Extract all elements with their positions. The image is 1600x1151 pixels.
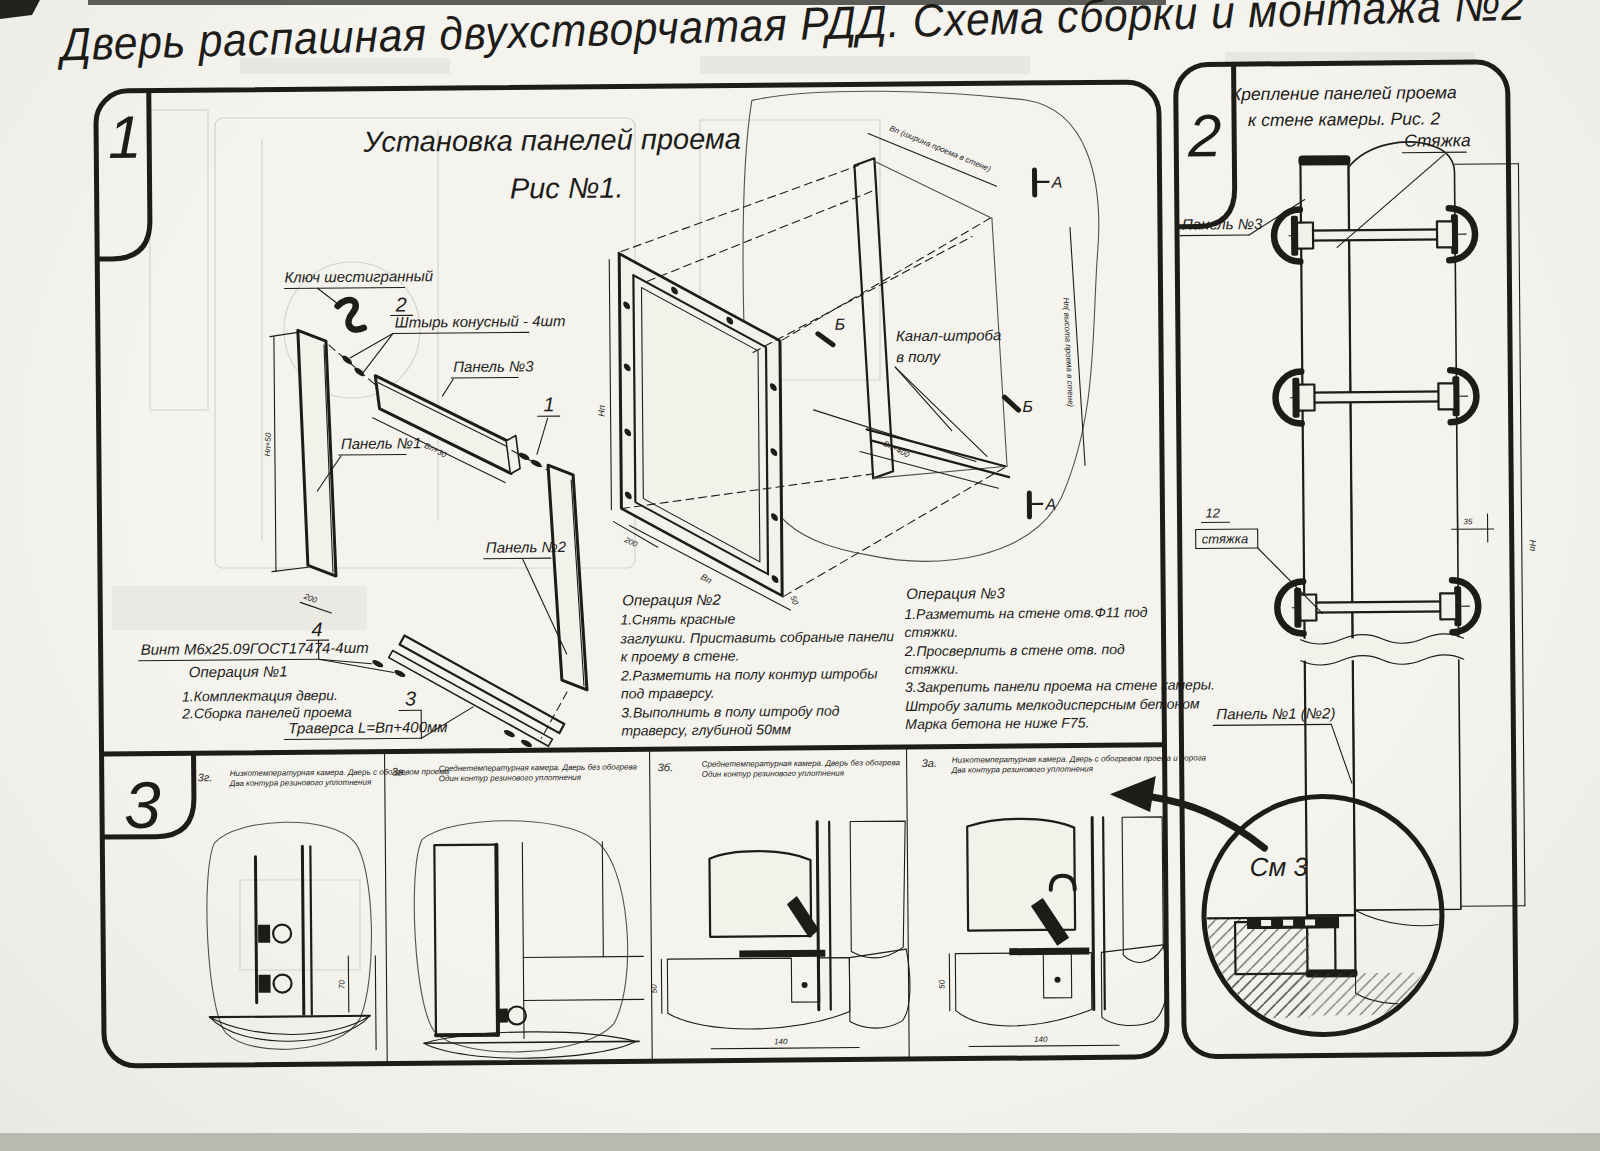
detail-3a-drawing: 50 140	[936, 817, 1168, 1047]
section-markers: А А Б Б	[816, 170, 1065, 519]
detail-3b-cap1: Среднетемпературная камера. Дверь без об…	[702, 758, 901, 769]
section2-header2: к стене камеры. Рис. 2	[1248, 108, 1441, 130]
op3-line: 2.Просверлить в стене отв. под	[904, 641, 1125, 659]
section2-header1: Крепление панелей проема	[1231, 82, 1457, 104]
detail-arrow	[1110, 775, 1265, 849]
section1-number: 1	[108, 104, 142, 171]
dim-200b: 200	[622, 535, 639, 550]
op3-title: Операция №3	[906, 584, 1005, 602]
detail-3v-cap2: Один контур резинового уплотнения	[439, 773, 582, 783]
detail-3g-id: 3г.	[198, 771, 213, 783]
dim-50: 50	[788, 595, 800, 607]
op3-line: 1.Разметить на стене отв.Ф11 под	[904, 604, 1147, 622]
dim-3g-70: 70	[338, 980, 347, 990]
detail-3v-drawing	[414, 820, 645, 1060]
dim-3b-140: 140	[774, 1037, 788, 1046]
panel12-label: Панель №1 (№2)	[1216, 704, 1335, 722]
op3-line: Марка бетона не ниже F75.	[905, 714, 1089, 732]
door-frame	[619, 254, 782, 596]
dim-np50: Нп+50	[263, 432, 273, 457]
operation-3: Операция №3 1.Разметить на стене отв.Ф11…	[903, 582, 1215, 732]
op1-title: Операция №1	[189, 662, 288, 680]
op3-line: 3.Закрепить панели проема на стене камер…	[905, 676, 1215, 695]
screw-label: Винт М6х25.09ГОСТ17474-4шт	[141, 639, 369, 658]
section1-figure: Установка панелей проема Рис №1.	[134, 88, 1216, 752]
op2-line: 2.Разметить на полу контур штробы	[620, 665, 878, 683]
channel-label-1: Канал-штроба	[896, 326, 1001, 344]
op2-line: к проему в стене.	[621, 648, 740, 665]
op2-title: Операция №2	[622, 591, 721, 609]
op2-line: 3.Выполнить в полу штробу под	[621, 703, 840, 721]
op3-line: стяжки.	[905, 661, 959, 677]
op1-line: 2.Сборка панелей проема	[181, 704, 352, 721]
tie-rod	[1274, 208, 1475, 262]
section3-number: 3	[124, 768, 162, 842]
marker-a-bottom: А	[1044, 496, 1056, 513]
detail-3g-drawing: 70	[206, 821, 376, 1051]
dim-np: Нп	[597, 405, 607, 417]
op2-line: под траверсу.	[621, 685, 715, 702]
op3-line: стяжки.	[904, 624, 958, 640]
detail-3v-cap1: Среднетемпературная камера. Дверь без об…	[439, 762, 638, 773]
callout-4: 4	[311, 618, 322, 640]
dim-vp: Вп	[699, 572, 713, 586]
marker-a-top: А	[1051, 174, 1063, 191]
op1-line: 1.Комплектация двери.	[182, 687, 338, 704]
operation-1: Операция №1 1.Комплектация двери. 2.Сбор…	[181, 662, 352, 721]
dim-35: 35	[1464, 517, 1474, 526]
pin-label: Штырь конусный - 4шт	[395, 312, 566, 330]
panel3-label: Панель №3	[453, 357, 534, 375]
detail-3a-cap1: Низкотемпературная камера. Дверь с обогр…	[952, 753, 1207, 764]
traverse-label: Траверса L=Вп+400мм	[288, 718, 447, 736]
hex-key-icon	[338, 300, 364, 330]
detail-3g-cap2: Два контура резинового уплотнения	[229, 778, 372, 788]
floor-channel	[860, 428, 1010, 489]
panel2-label: Панель №2	[486, 538, 567, 556]
marker-b-left: Б	[835, 316, 846, 333]
detail-3a-id: 3а.	[922, 757, 937, 769]
isometric-assembly: А А Б Б Канал-штроба в полу	[594, 89, 1102, 612]
callout-3: 3	[405, 687, 416, 709]
wall-section	[1295, 142, 1466, 978]
tie12-label: стяжка	[1202, 531, 1249, 546]
panel-section2: 2 Крепление панелей проема к стене камер…	[1176, 62, 1543, 1057]
callout-2: 2	[395, 293, 407, 315]
detail-3b-drawing: 50 140	[648, 821, 910, 1049]
op2-line: 1.Снять красные	[620, 611, 735, 628]
op3-line: Штробу залить мелкодисперсным бетоном	[905, 696, 1200, 715]
dim-opening-width: Вп (ширина проема в стене)	[888, 124, 992, 174]
op2-line: траверсу, глубиной 50мм	[621, 721, 791, 738]
dim-3b-50: 50	[650, 984, 659, 994]
see3-label: См 3	[1249, 852, 1308, 883]
dim-3a-50: 50	[938, 979, 947, 989]
tie-rod	[1275, 370, 1476, 424]
callout-1: 1	[543, 393, 554, 415]
detail-3v-id: 3в.	[392, 765, 407, 777]
detail-3b-cap2: Один контур резинового уплотнения	[702, 769, 845, 779]
detail-3g-cap1: Низкотемпературная камера. Дверь с обогр…	[230, 767, 450, 778]
panel1-label: Панель №1	[341, 434, 422, 452]
dim-vp30: Вп+30	[423, 441, 448, 460]
dim-np-wall: Нп	[1528, 540, 1538, 552]
channel-label-2: в полу	[896, 348, 942, 365]
fig1-title-line2: Рис №1.	[510, 172, 624, 205]
marker-b-right: Б	[1022, 398, 1033, 415]
section3-strip: 3г. Низкотемпературная камера. Дверь с о…	[198, 746, 1210, 1063]
hex-key-label: Ключ шестигранный	[284, 267, 434, 285]
dim-3a-140: 140	[1034, 1035, 1048, 1044]
channel-leaders	[895, 366, 987, 457]
operation-2: Операция №2 1.Снять красные заглушки. Пр…	[619, 589, 895, 738]
detail-3b-id: 3б.	[658, 761, 673, 773]
detail-3a-cap2: Два контура резинового уплотнения	[951, 764, 1094, 774]
panel3-label-s2: Панель №3	[1182, 215, 1263, 233]
fig1-title-line1: Установка панелей проема	[362, 122, 741, 157]
tie-rod	[1277, 580, 1478, 634]
op2-line: заглушки. Приставить собраные панели	[619, 628, 894, 646]
dim-opening-height: Нп( высота проема в стене)	[1062, 297, 1076, 407]
dim-vp400: Вп+400	[882, 439, 911, 460]
tie12-number: 12	[1205, 505, 1220, 520]
tie-label: Стяжка	[1404, 130, 1471, 151]
section2-number: 2	[1187, 102, 1222, 169]
scanned-drawing-sheet: Дверь распашная двухстворчатая РДД. Схем…	[0, 0, 1600, 1151]
